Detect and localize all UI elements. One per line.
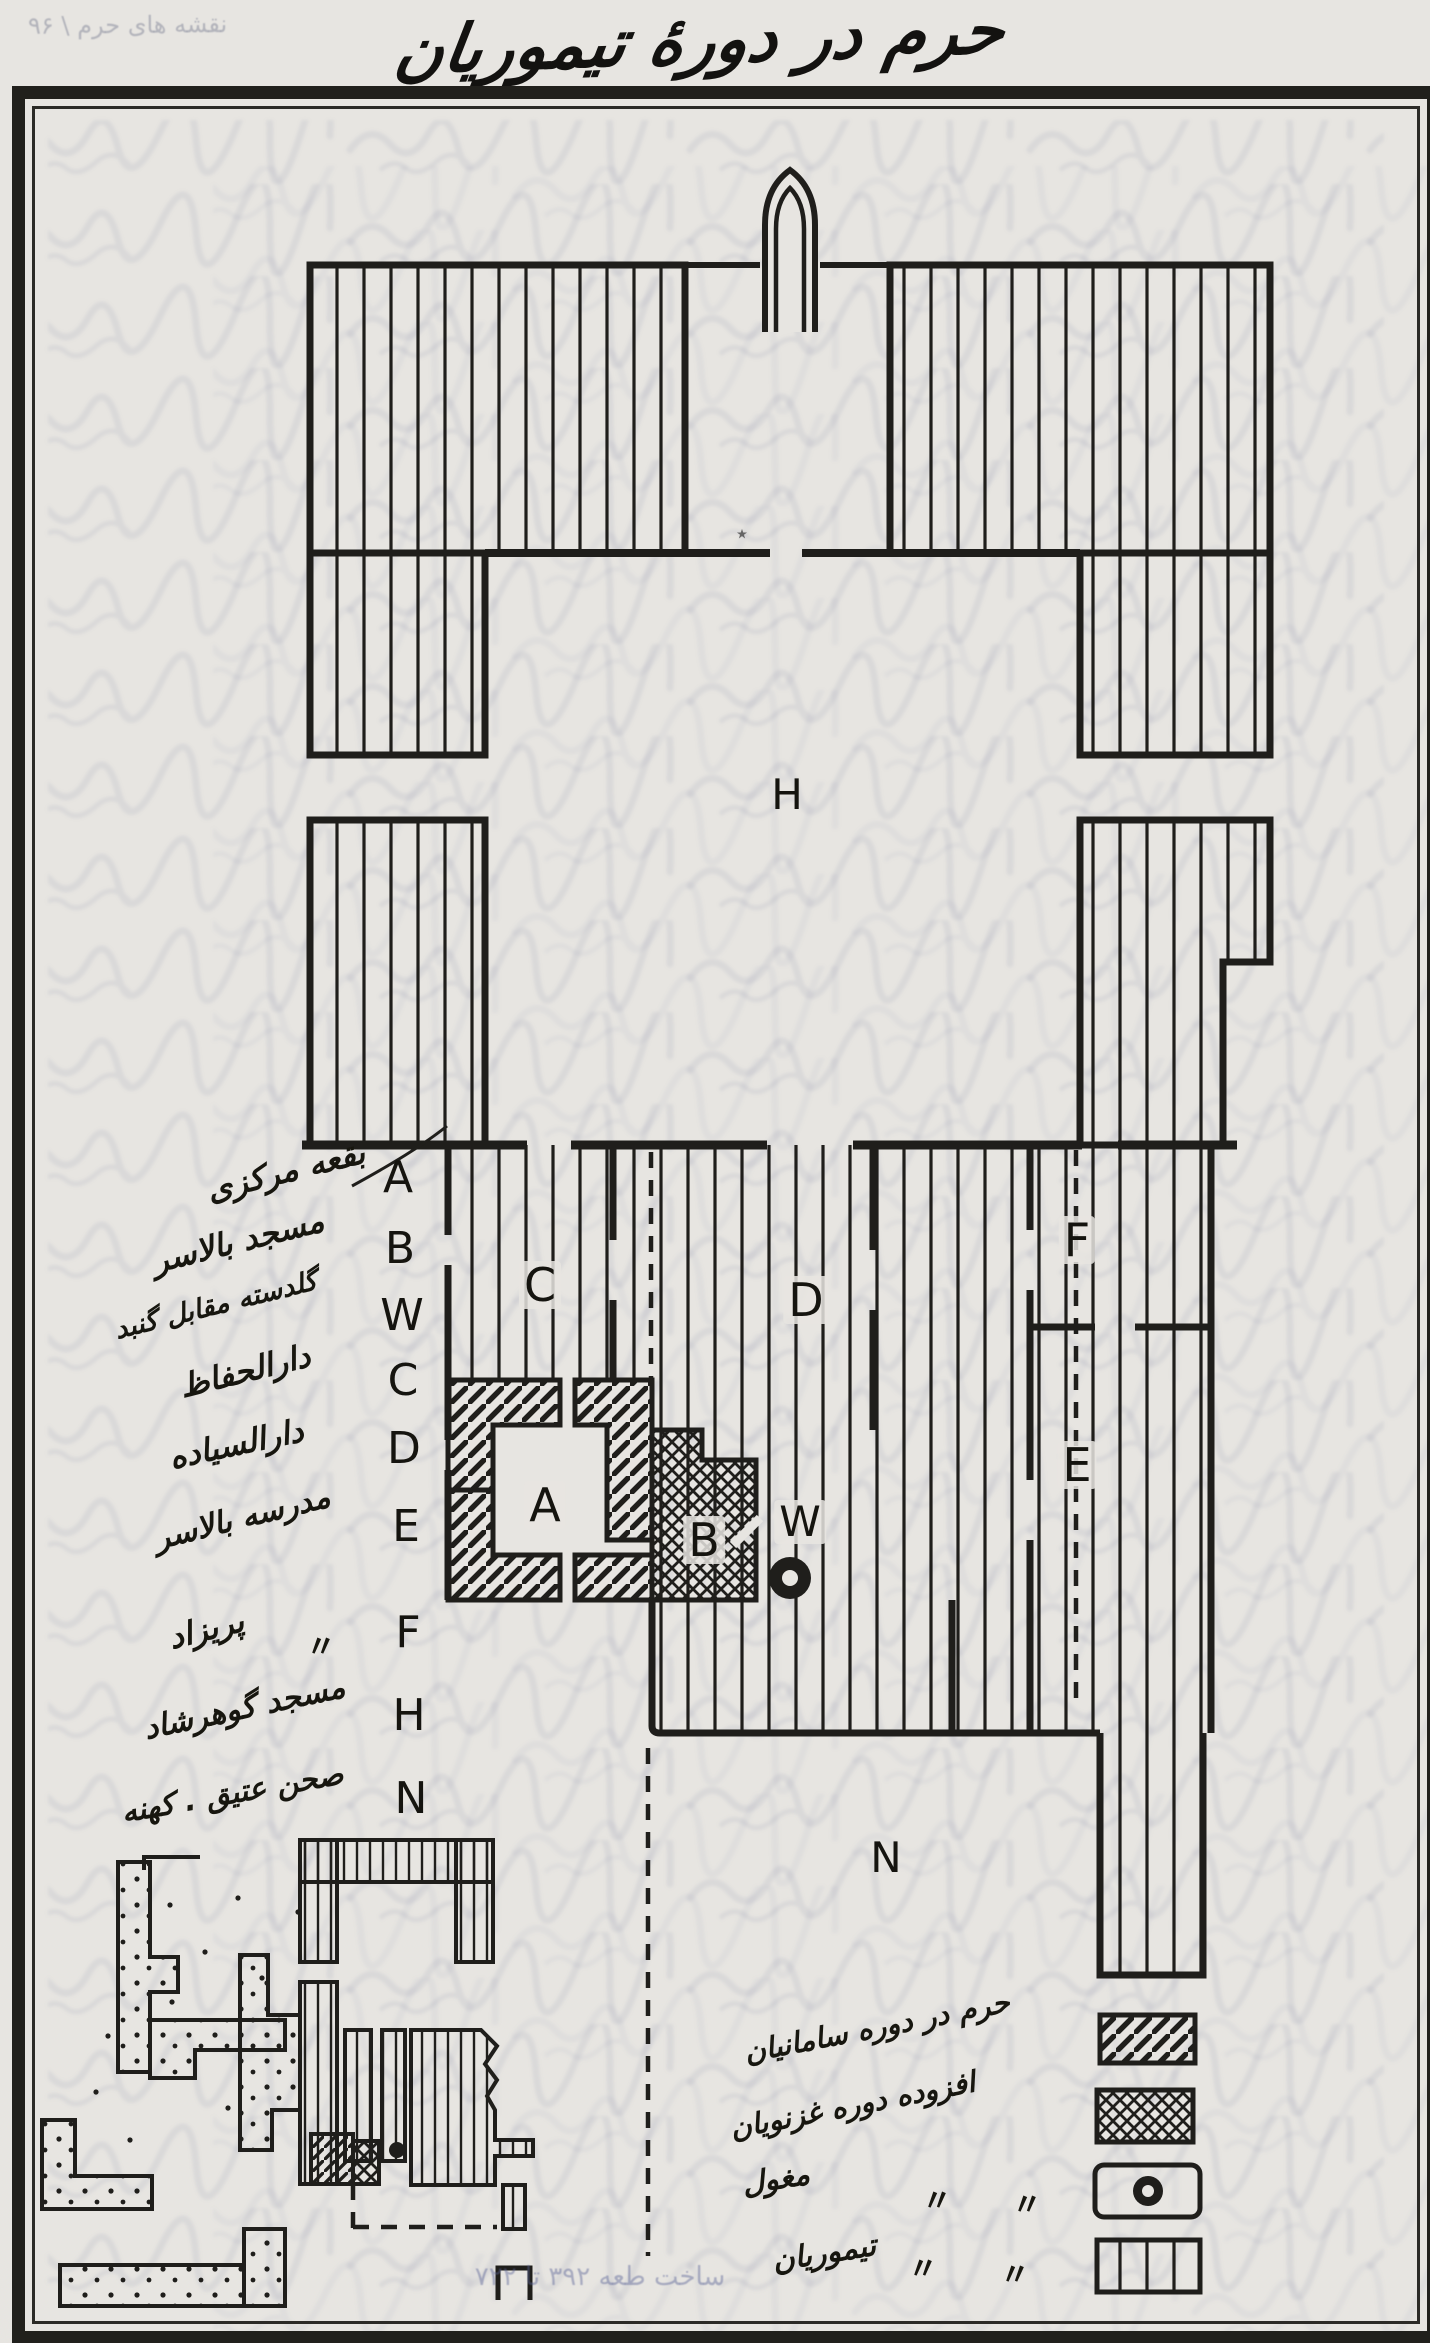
key-letter-B: B: [385, 1227, 415, 1271]
key-label-F-ditto: 〃: [306, 1622, 336, 1666]
plan-label-H: H: [766, 773, 808, 817]
key-letter-C: C: [388, 1359, 419, 1403]
minaret-symbol-w: [769, 1557, 811, 1599]
legend-minaret-swatch-symbol: [1133, 2176, 1163, 2206]
courtyard-asterisk-mark: ٭: [736, 522, 748, 547]
legend-mongol-ditto-2: 〃: [1012, 2180, 1042, 2224]
plan-label-F: F: [1059, 1216, 1095, 1264]
plan-label-N: N: [865, 1836, 906, 1880]
plan-label-C: C: [519, 1261, 561, 1309]
plan-label-B: B: [683, 1516, 725, 1564]
key-letter-W: W: [380, 1294, 424, 1338]
plan-label-E: E: [1057, 1441, 1096, 1489]
plan-label-W: W: [774, 1500, 826, 1544]
key-letter-E: E: [392, 1505, 420, 1549]
key-letter-D: D: [387, 1427, 421, 1471]
key-letter-A: A: [383, 1156, 413, 1200]
faint-footnote: ساخت طعه ۳۹۲ تا ۷۲۲: [290, 2262, 910, 2292]
plan-label-D: D: [783, 1276, 828, 1324]
key-letter-F: F: [395, 1611, 420, 1655]
plan-label-A: A: [524, 1481, 565, 1529]
legend-mongol-ditto-1: 〃: [922, 2176, 952, 2220]
legend-timurid-ditto-2: 〃: [1000, 2250, 1030, 2294]
legend-timurid-ditto-1: 〃: [908, 2244, 938, 2288]
key-letter-H: H: [392, 1694, 425, 1738]
key-letter-N: N: [395, 1777, 428, 1821]
scanned-book-page: نقشه های حرم \ ۹۶ حرم در دورهٔ تیموریان: [0, 0, 1430, 2343]
